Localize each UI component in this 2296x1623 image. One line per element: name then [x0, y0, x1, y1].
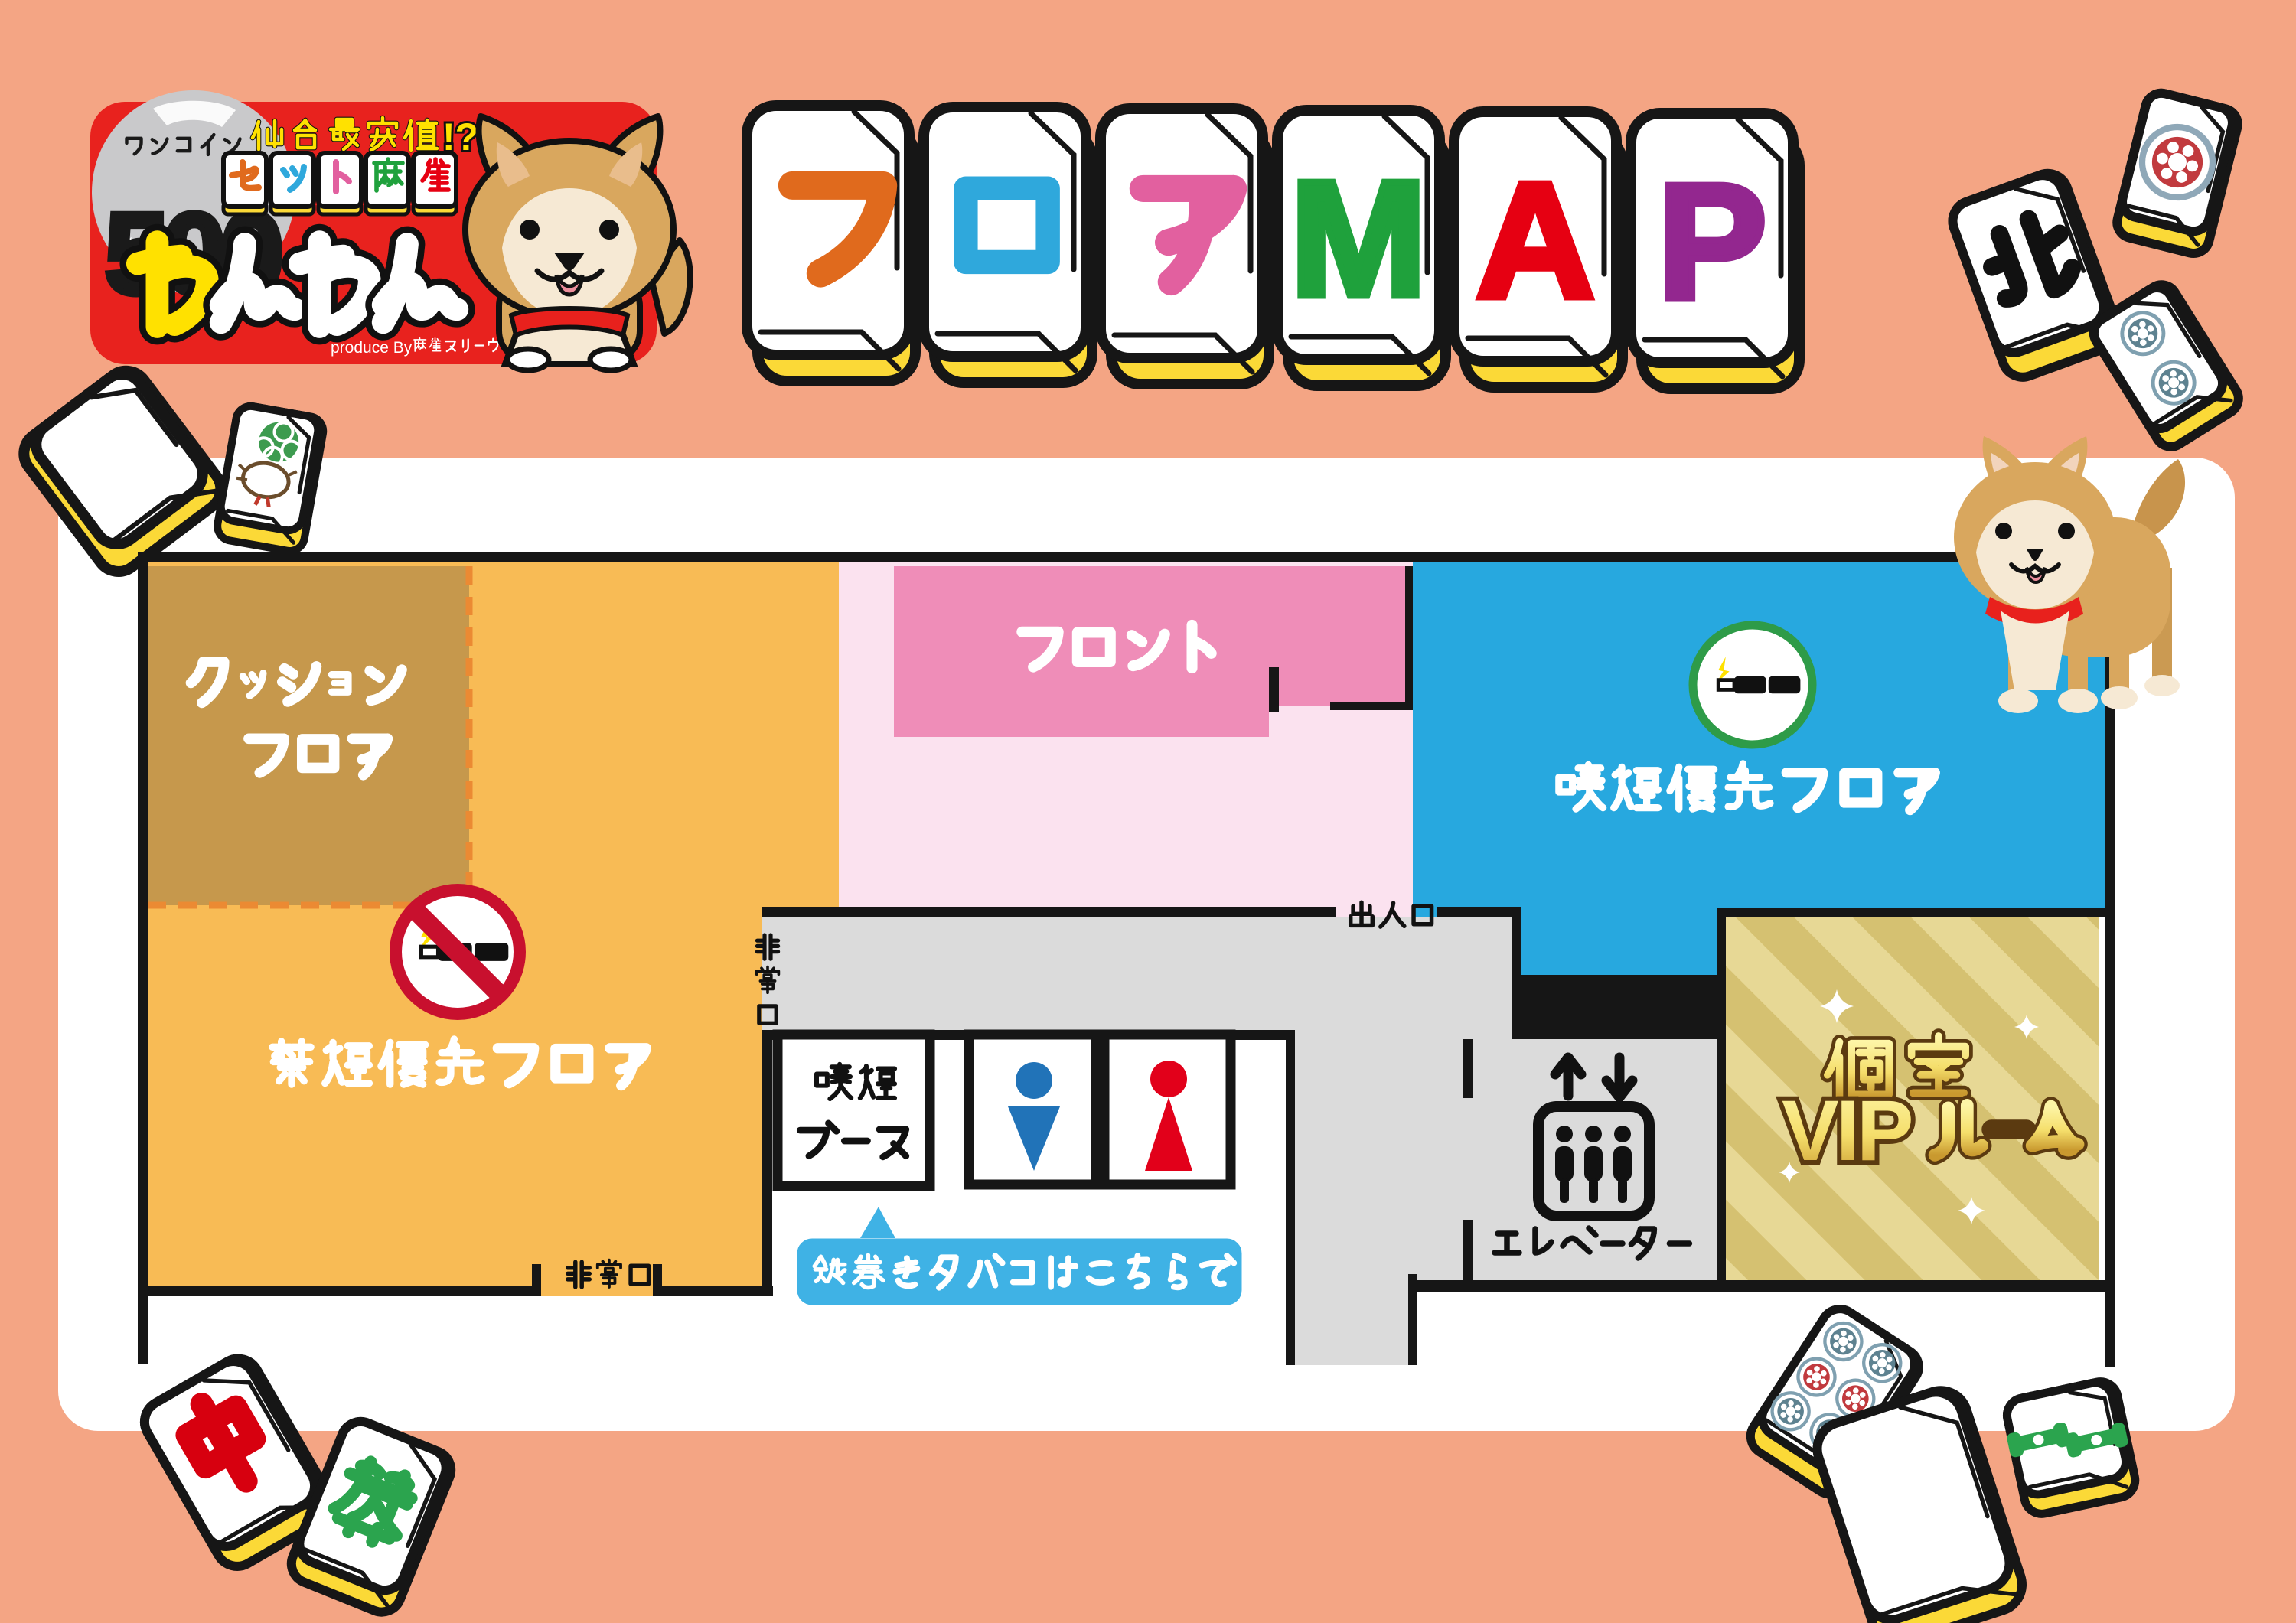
svg-text:P: P: [1657, 149, 1766, 334]
svg-text:M: M: [1290, 146, 1427, 331]
svg-text:produce By: produce By: [331, 339, 413, 357]
svg-text:VIP: VIP: [1782, 1083, 1911, 1178]
svg-text:A: A: [1476, 148, 1594, 332]
